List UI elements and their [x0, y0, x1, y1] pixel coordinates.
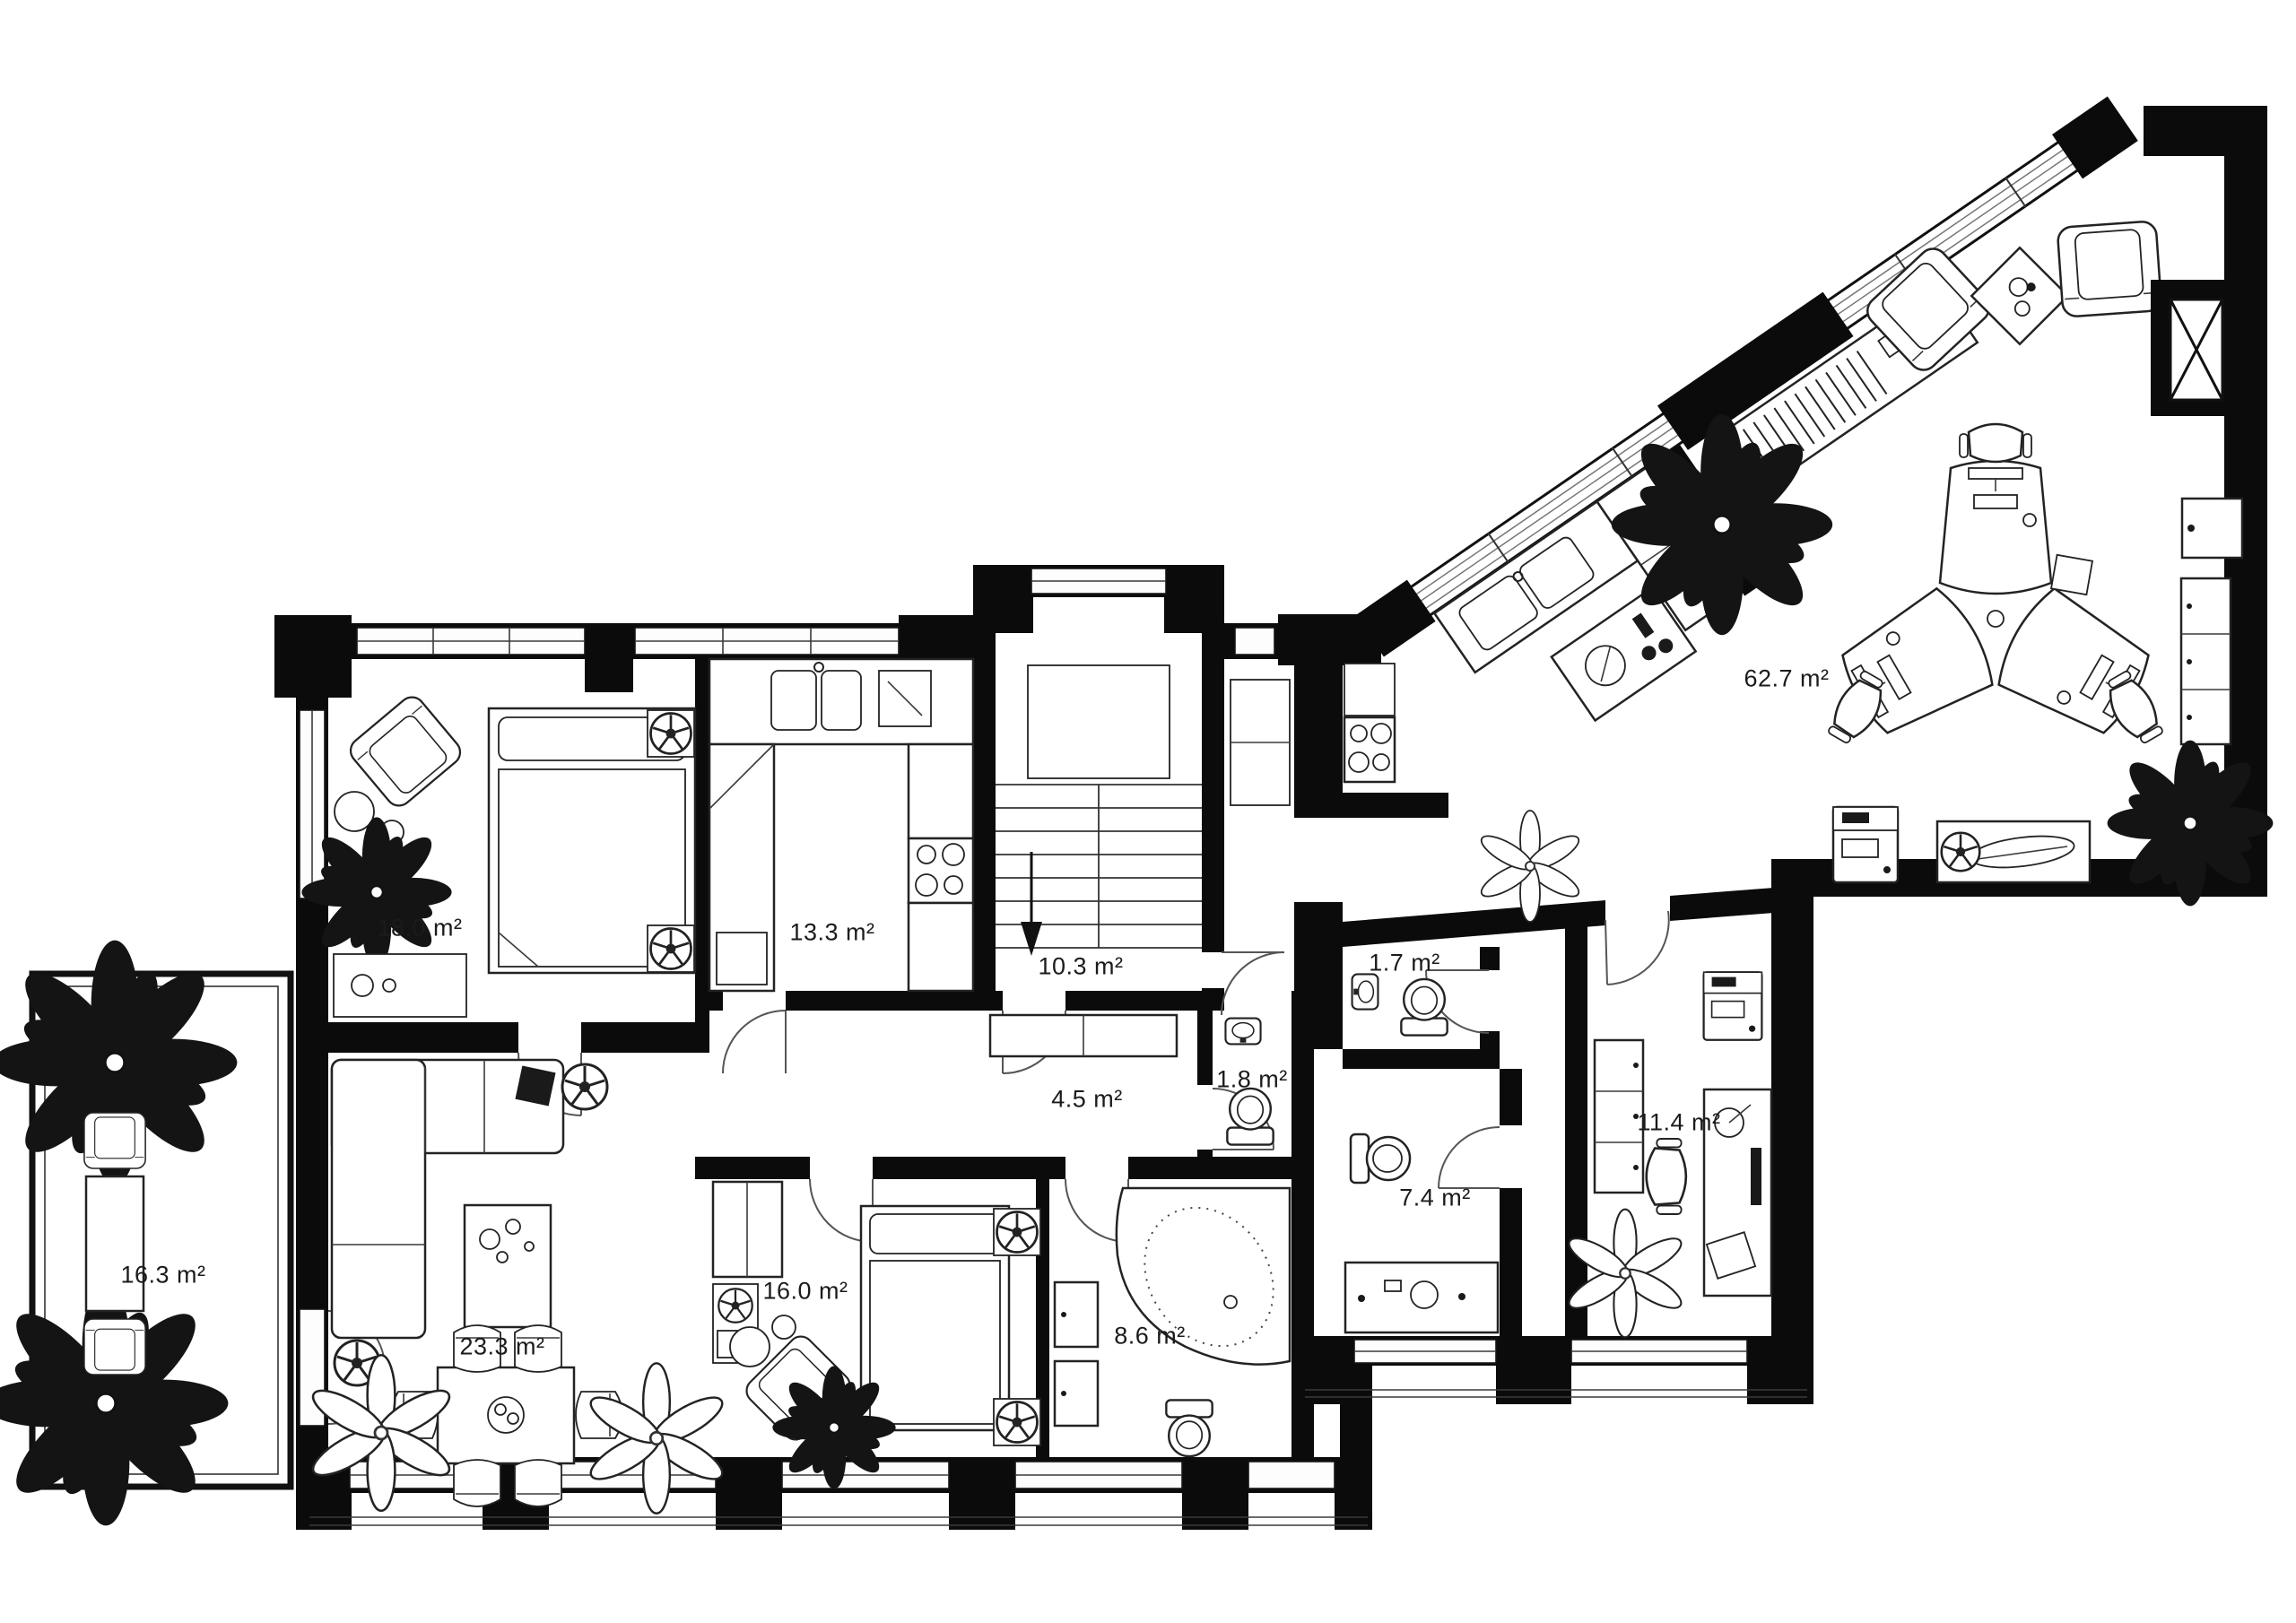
- terrace-table: [86, 1176, 143, 1311]
- bedroom-main-furniture: [301, 692, 695, 1017]
- office-chair-icon: [1960, 424, 2031, 462]
- wheel-icon: [997, 1212, 1038, 1253]
- room-label-terrace: 16.3 m²: [120, 1262, 205, 1289]
- terrace: [0, 941, 291, 1526]
- room-label-bedroom-main: 18.0 m²: [377, 915, 462, 942]
- office-chair-icon: [1647, 1139, 1686, 1214]
- bathroom-right-fixtures: [1345, 1134, 1498, 1332]
- room-label-corridor: 4.5 m²: [1051, 1086, 1123, 1114]
- wheel-icon: [651, 929, 691, 969]
- terrace-chair: [84, 1113, 145, 1168]
- room-label-bathroom-right: 7.4 m²: [1399, 1185, 1471, 1212]
- room-label-office-room: 11.4 m²: [1637, 1109, 1720, 1137]
- floor-plan-canvas: 18.0 m² 13.3 m² 10.3 m² 4.5 m² 1.8 m² 1.…: [0, 0, 2296, 1623]
- printer-icon: [1833, 807, 1898, 882]
- room-label-bathroom-main: 8.6 m²: [1114, 1323, 1186, 1350]
- room-label-guest-wc: 1.7 m²: [1369, 950, 1440, 977]
- printer-icon: [1704, 972, 1762, 1040]
- armchair-icon: [2057, 221, 2162, 317]
- room-label-living-room: 23.3 m²: [459, 1333, 544, 1361]
- wheel-icon: [997, 1402, 1038, 1443]
- living-room-furniture: [307, 1060, 728, 1514]
- office-room-furniture: [1564, 972, 1771, 1337]
- toilet-icon: [1227, 1089, 1273, 1145]
- room-label-open-office: 62.7 m²: [1744, 665, 1829, 693]
- armchair-icon: [345, 692, 465, 811]
- toilet-icon: [1351, 1134, 1410, 1183]
- plant-icon: [772, 1366, 895, 1488]
- side-table: [1971, 247, 2067, 343]
- wheel-icon: [651, 714, 691, 754]
- floor-plan-drawing: [0, 0, 2296, 1623]
- terrace-chair: [84, 1319, 145, 1375]
- toilet-icon: [1166, 1400, 1212, 1456]
- wheel-icon: [562, 1064, 607, 1109]
- room-label-wc: 1.8 m²: [1216, 1066, 1288, 1094]
- sink-icon: [1352, 974, 1378, 1009]
- bathroom-main-fixtures: [1055, 1183, 1300, 1456]
- room-label-kitchen: 13.3 m²: [789, 919, 874, 947]
- sink-icon: [1225, 1019, 1260, 1045]
- room-label-bedroom-second: 16.0 m²: [762, 1278, 848, 1306]
- bedroom-second-furniture: [713, 1182, 1040, 1489]
- room-label-stair-hall: 10.3 m²: [1038, 953, 1123, 981]
- elevator-icon: [2151, 280, 2267, 416]
- guest-wc-fixtures: [1352, 974, 1448, 1035]
- stove-icon: [909, 838, 973, 903]
- toilet-icon: [1401, 979, 1447, 1036]
- plant-icon: [1612, 414, 1832, 635]
- plant-icon: [2108, 741, 2274, 907]
- plant-icon: [301, 817, 451, 967]
- staircase: [996, 665, 1202, 956]
- stairs-down-arrow-icon: [1021, 922, 1042, 956]
